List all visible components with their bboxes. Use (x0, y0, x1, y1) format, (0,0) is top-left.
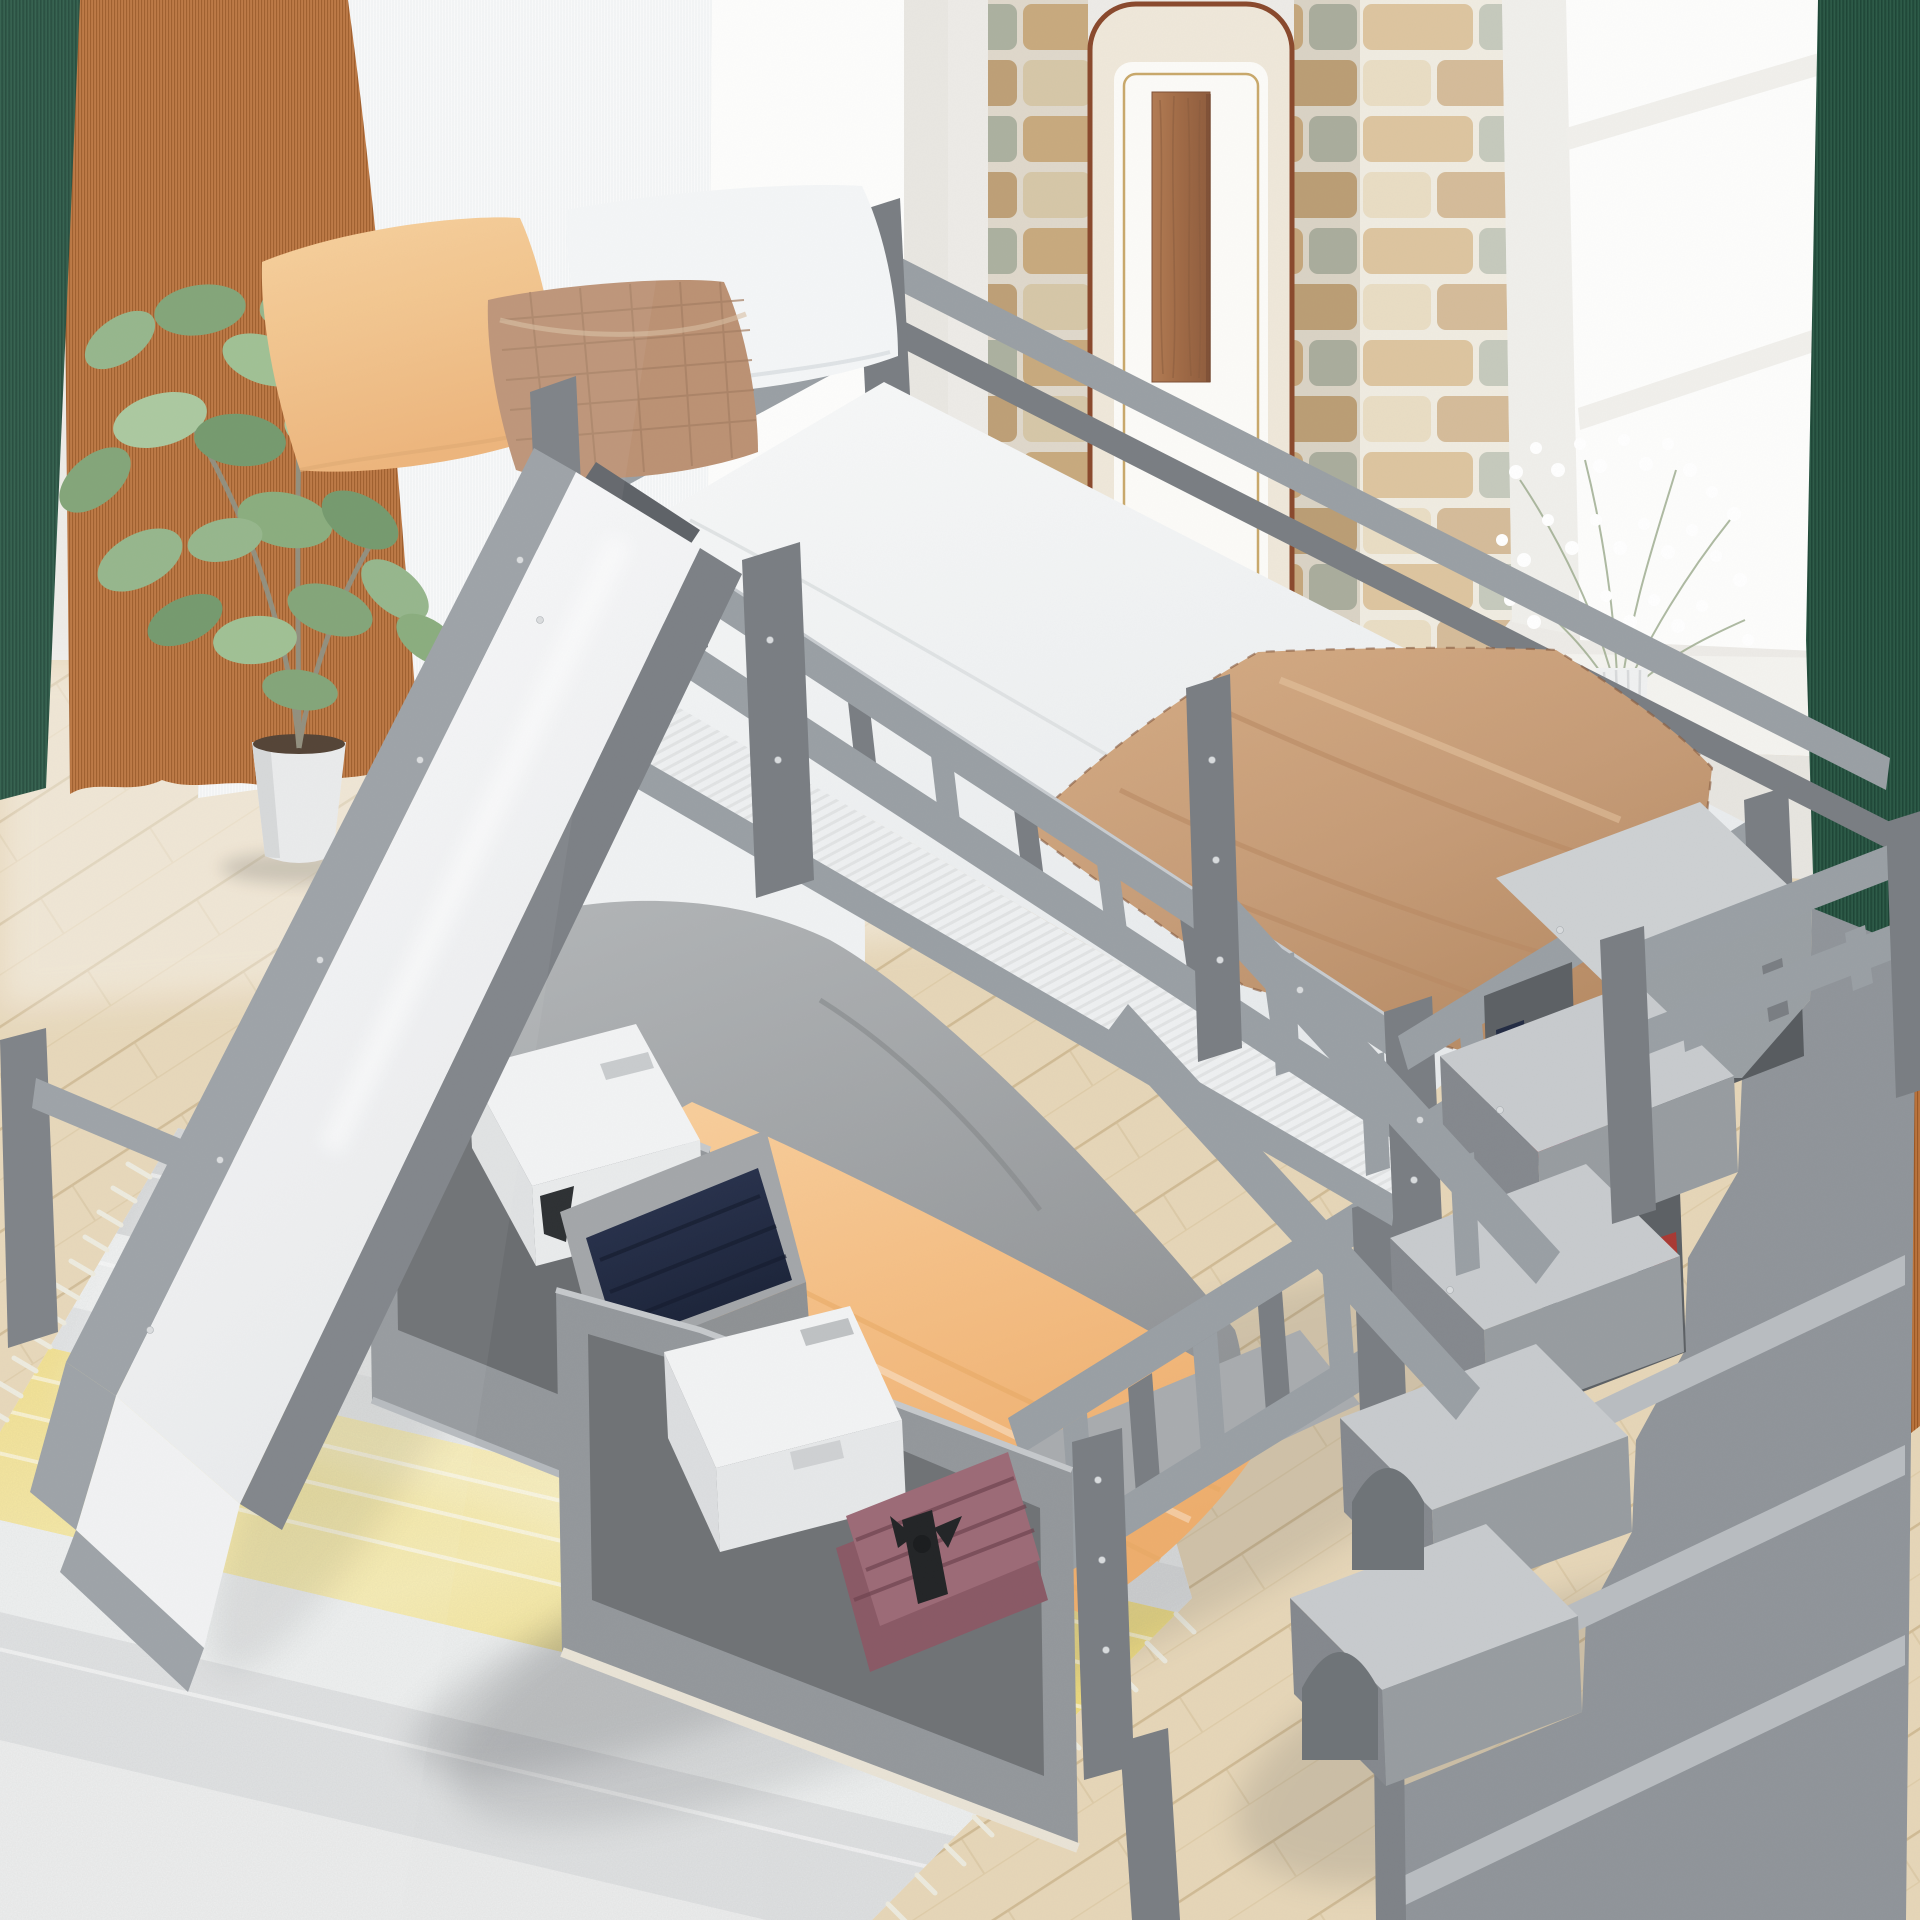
bunk-bed-scene: RAY (0, 0, 1920, 1920)
product-photo-stage: RAY (0, 0, 1920, 1920)
